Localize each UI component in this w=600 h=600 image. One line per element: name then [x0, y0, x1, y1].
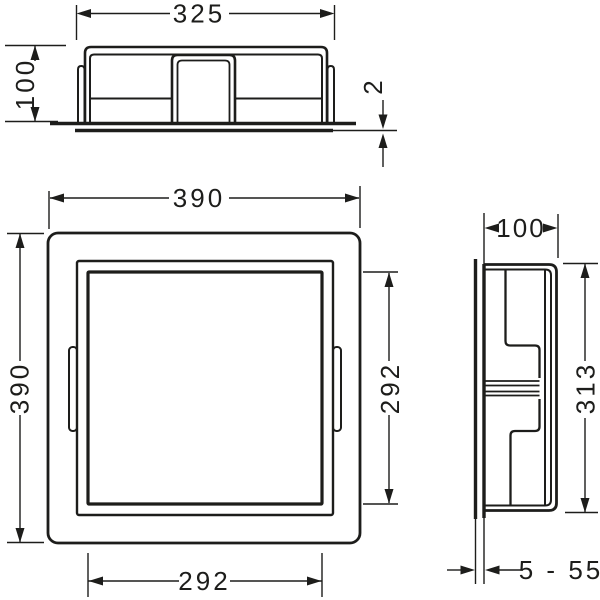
dim-label-top-depth: 100 — [10, 58, 40, 110]
arrowhead-right — [461, 566, 476, 575]
dim-front-opening-height: 292 — [363, 272, 405, 504]
arrowhead-left — [89, 577, 104, 586]
dim-side-depth: 100 — [485, 213, 559, 258]
front-view: 390 390 292 — [5, 183, 406, 597]
dim-front-outer-width: 390 — [49, 183, 360, 229]
dim-label-front-opening-width: 292 — [178, 566, 230, 596]
arrowhead-left — [485, 566, 500, 575]
top-body-outer — [85, 47, 327, 122]
dim-label-top-width: 325 — [173, 0, 225, 29]
dim-label-tile-thickness-range: 5 - 55 — [519, 555, 600, 585]
dim-label-front-outer-height: 390 — [5, 362, 35, 414]
dim-label-front-opening-height: 292 — [375, 362, 405, 414]
top-view: 325 100 2 — [5, 0, 397, 167]
dim-top-depth: 100 — [5, 46, 66, 122]
dim-label-front-outer-width: 390 — [173, 183, 225, 213]
arrowhead-up — [385, 273, 394, 288]
arrowhead-right — [307, 577, 322, 586]
dim-side-inner-height: 313 — [563, 264, 600, 513]
front-opening — [88, 272, 322, 504]
arrowhead-right — [345, 194, 360, 203]
dim-label-side-depth: 100 — [496, 213, 545, 243]
dim-label-side-inner-height: 313 — [571, 362, 600, 414]
top-bracket-outer — [172, 55, 235, 122]
arrowhead-up — [581, 264, 590, 279]
arrowhead-up — [16, 234, 25, 249]
dim-label-flange-thickness: 2 — [358, 77, 388, 94]
side-bracket-upper — [506, 270, 540, 378]
side-body-inner — [484, 270, 551, 506]
arrowhead-down — [16, 528, 25, 543]
side-view: 100 313 5 - 55 — [447, 213, 600, 585]
dim-top-width: 325 — [77, 0, 335, 40]
dim-front-opening-width: 292 — [88, 553, 322, 597]
top-body-inner — [90, 55, 322, 123]
arrowhead-down — [385, 489, 394, 504]
front-outer-frame — [48, 233, 360, 543]
top-clip-left — [78, 66, 85, 122]
arrowhead-right — [320, 9, 335, 18]
arrowhead-down — [581, 498, 590, 513]
front-inner-frame — [77, 261, 333, 515]
dim-flange-thickness: 2 — [358, 77, 388, 167]
arrowhead-up — [379, 134, 388, 149]
arrowhead-left — [77, 9, 92, 18]
arrowhead-down — [379, 115, 388, 130]
technical-drawing: 325 100 2 — [0, 0, 600, 600]
dim-tile-thickness-range: 5 - 55 — [447, 555, 600, 585]
top-clip-right — [328, 66, 335, 122]
arrowhead-left — [50, 194, 65, 203]
side-bracket-lower — [511, 399, 540, 505]
drawing-canvas: 325 100 2 — [0, 0, 600, 600]
dim-front-outer-height: 390 — [5, 234, 45, 543]
top-bracket-inner — [178, 61, 230, 123]
